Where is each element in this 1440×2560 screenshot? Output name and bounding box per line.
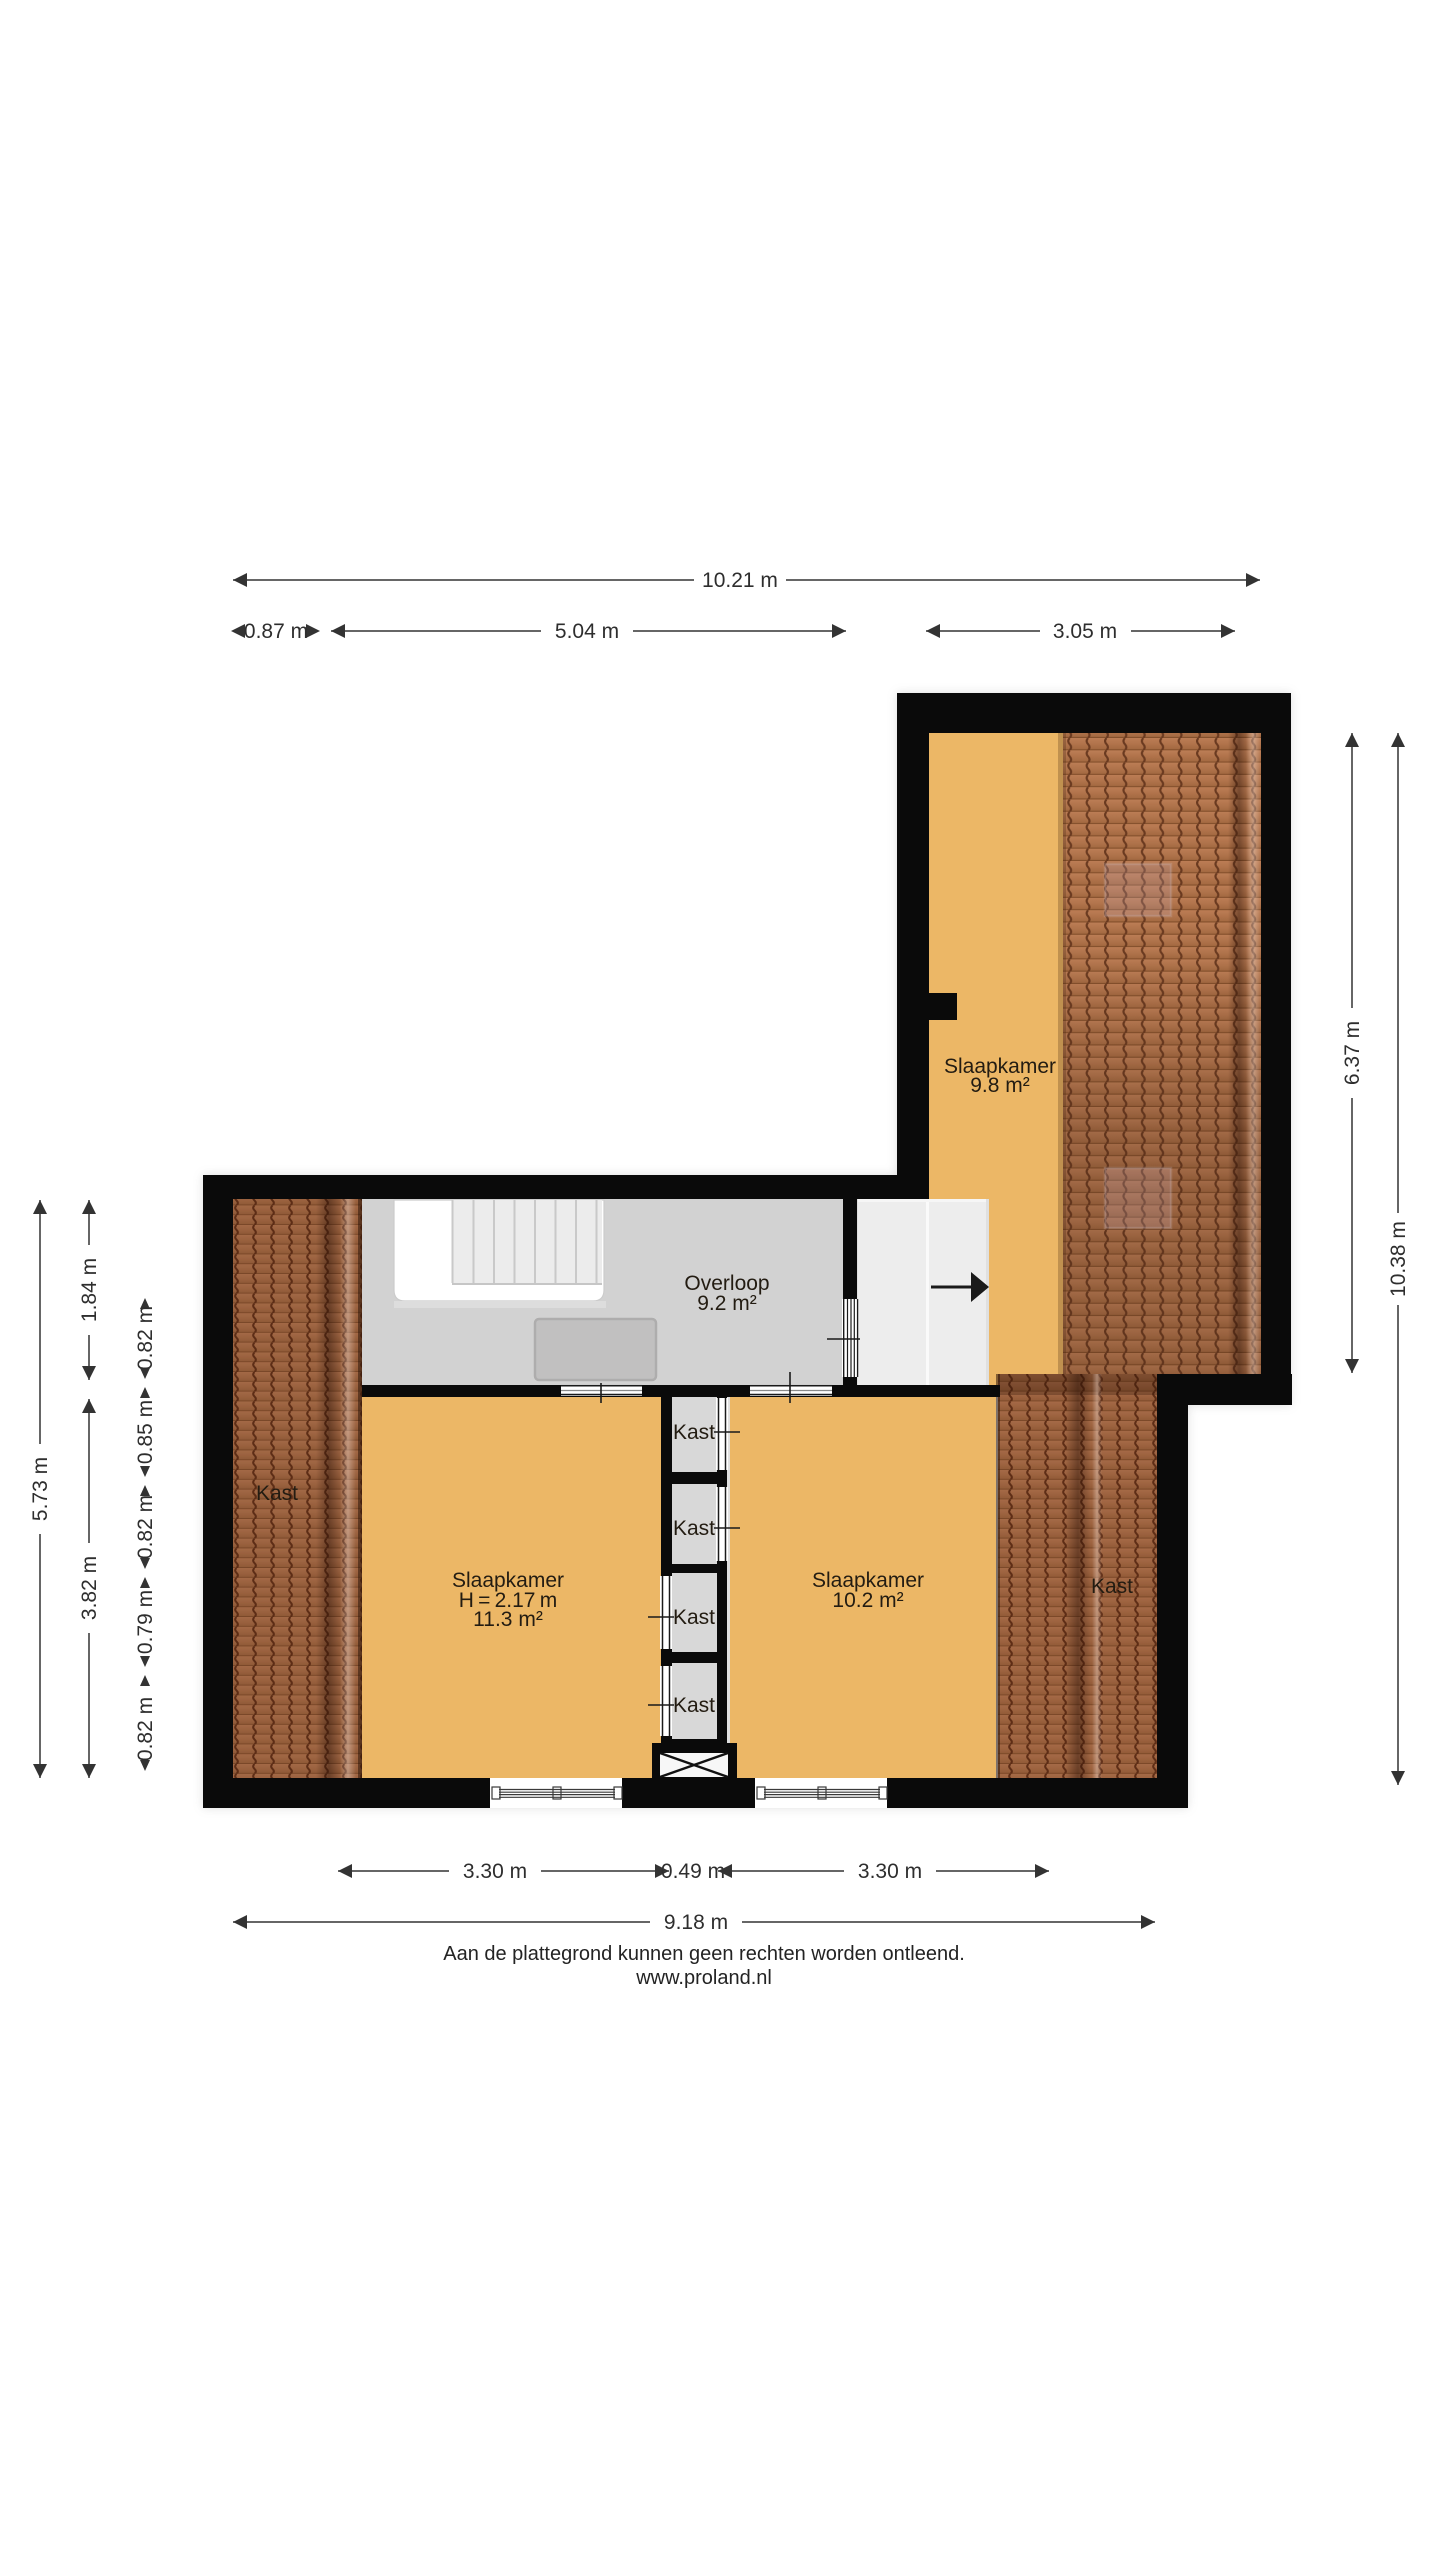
svg-text:11.3 m²: 11.3 m² [473, 1608, 543, 1631]
svg-text:Kast: Kast [673, 1421, 715, 1444]
svg-text:Aan de plattegrond kunnen geen: Aan de plattegrond kunnen geen rechten w… [443, 1943, 965, 1965]
svg-text:9.2 m²: 9.2 m² [697, 1292, 757, 1315]
svg-text:0.87 m: 0.87 m [244, 620, 308, 643]
svg-text:0.79 m: 0.79 m [134, 1590, 157, 1654]
svg-text:0.82 m: 0.82 m [134, 1495, 157, 1559]
svg-text:3.05 m: 3.05 m [1053, 620, 1117, 643]
svg-text:10.21 m: 10.21 m [702, 569, 778, 592]
svg-text:0.82 m: 0.82 m [134, 1697, 157, 1761]
svg-text:0.82 m: 0.82 m [134, 1306, 157, 1370]
svg-text:Kast: Kast [1091, 1575, 1133, 1598]
svg-text:5.73 m: 5.73 m [29, 1457, 52, 1521]
svg-text:10.2 m²: 10.2 m² [832, 1589, 903, 1612]
svg-text:3.30 m: 3.30 m [463, 1860, 527, 1883]
svg-text:Kast: Kast [673, 1694, 715, 1717]
svg-text:6.37 m: 6.37 m [1341, 1021, 1364, 1085]
svg-text:3.30 m: 3.30 m [858, 1860, 922, 1883]
svg-text:Kast: Kast [256, 1482, 298, 1505]
svg-text:Kast: Kast [673, 1606, 715, 1629]
svg-text:www.proland.nl: www.proland.nl [635, 1967, 772, 1989]
svg-text:10.38 m: 10.38 m [1387, 1221, 1410, 1297]
svg-text:5.04 m: 5.04 m [555, 620, 619, 643]
svg-text:1.84 m: 1.84 m [78, 1258, 101, 1322]
svg-text:9.8 m²: 9.8 m² [970, 1074, 1030, 1097]
svg-text:Kast: Kast [673, 1517, 715, 1540]
svg-text:0.85 m: 0.85 m [134, 1400, 157, 1464]
svg-text:9.18 m: 9.18 m [664, 1911, 728, 1934]
svg-text:0.49 m: 0.49 m [661, 1860, 725, 1883]
svg-text:3.82 m: 3.82 m [78, 1556, 101, 1620]
